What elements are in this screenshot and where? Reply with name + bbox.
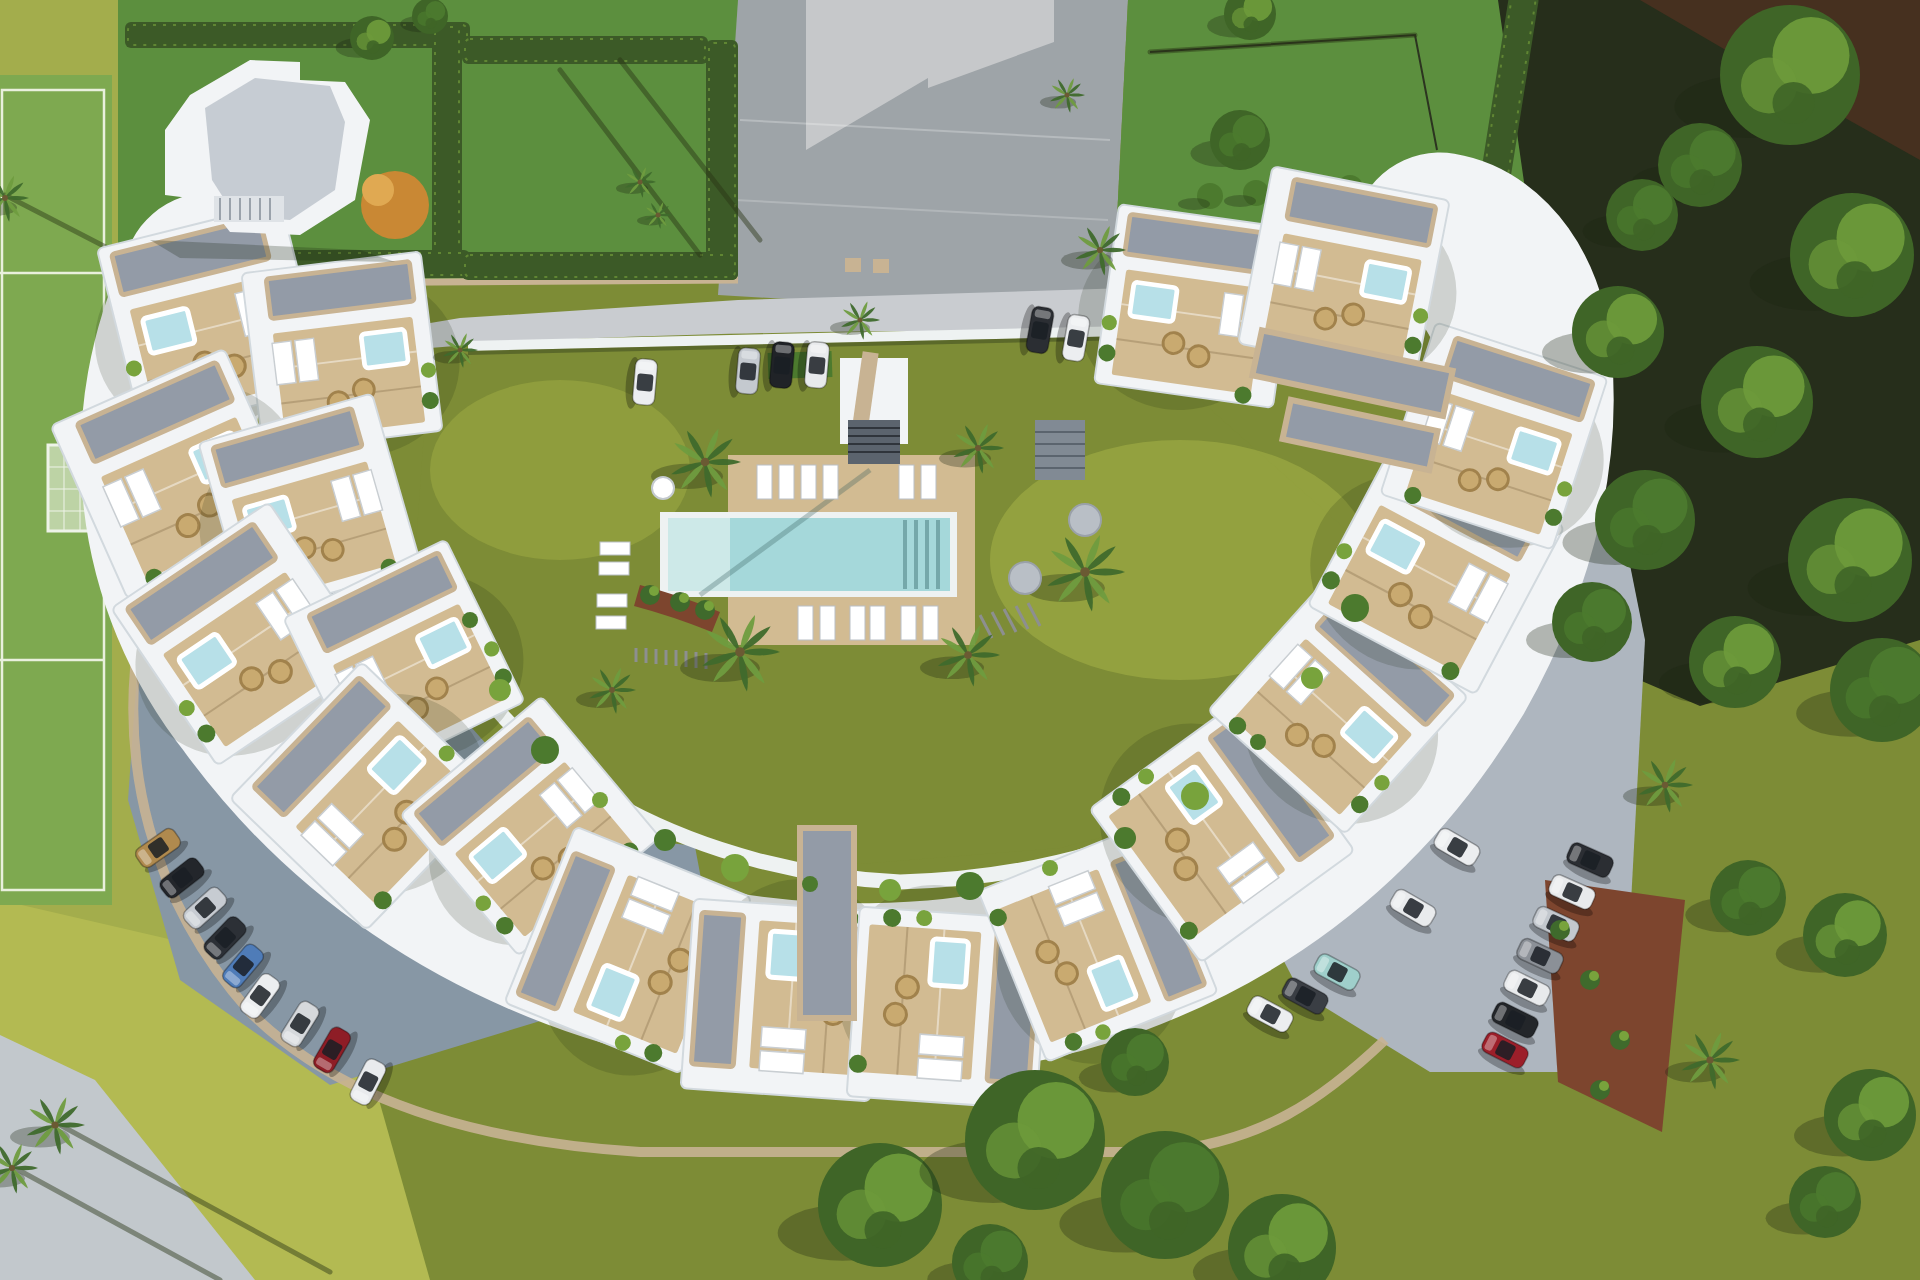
hedge — [462, 252, 738, 280]
sun-lounger — [295, 338, 319, 382]
walkway-plant — [1301, 667, 1323, 689]
hedge — [706, 40, 738, 280]
wicker-chair — [1187, 344, 1211, 368]
sun-lounger — [761, 1027, 806, 1050]
pool-lounger — [899, 465, 914, 499]
side-stairs — [1035, 420, 1085, 480]
gate-pillar-left — [845, 258, 861, 272]
walkway-plant — [1181, 782, 1209, 810]
walkway-plant — [654, 829, 676, 851]
sun-lounger — [759, 1051, 804, 1074]
car-hood-highlight — [810, 344, 827, 353]
pool-lounger — [820, 606, 835, 640]
pool-lounger — [798, 606, 813, 640]
entrance-pavilion — [840, 351, 908, 464]
walkway-plant — [592, 792, 608, 808]
pool-lounger — [850, 606, 865, 640]
lawn-sun-patch-2 — [430, 380, 690, 560]
pool-lounger — [870, 606, 885, 640]
pool-lounger — [596, 616, 626, 629]
jacuzzi — [1361, 261, 1410, 303]
car-glass — [808, 356, 825, 374]
bed-shrub-highlight — [649, 586, 659, 596]
walkway-plant — [721, 854, 749, 882]
pebble-strip-central — [800, 828, 854, 1018]
car-hood-highlight — [741, 350, 758, 359]
wicker-chair — [896, 975, 919, 998]
autumn-tree-highlight — [362, 174, 394, 206]
bed-shrub-highlight — [1589, 971, 1599, 981]
car-glass — [1067, 329, 1086, 349]
walkway-plant — [802, 876, 818, 892]
bed-shrub-highlight — [1599, 1081, 1609, 1091]
sun-lounger — [917, 1058, 962, 1081]
car-hood-highlight — [775, 344, 792, 353]
car-hood-highlight — [638, 361, 655, 370]
pool-lounger — [801, 465, 816, 499]
bed-shrub-highlight — [1619, 1031, 1629, 1041]
car-glass — [739, 362, 756, 380]
sun-lounger — [272, 341, 296, 385]
car-glass — [773, 356, 790, 374]
car-glass — [1031, 321, 1050, 341]
shrub-shadow — [1178, 198, 1210, 210]
hedge — [432, 24, 462, 276]
pool-lounger — [600, 542, 630, 555]
jacuzzi — [142, 308, 195, 354]
pool-lounger — [597, 594, 627, 607]
walkway-plant — [489, 679, 511, 701]
jacuzzi — [1129, 282, 1177, 322]
wicker-chair — [1162, 331, 1186, 355]
pool-lounger — [757, 465, 772, 499]
walkway-plant — [879, 879, 901, 901]
walkway-plant — [1341, 594, 1369, 622]
aerial-render — [0, 0, 1920, 1280]
scene-canvas — [0, 0, 1920, 1280]
pool-lounger — [923, 606, 938, 640]
walkway-plant — [956, 872, 984, 900]
bed-shrub-highlight — [704, 601, 714, 611]
jacuzzi — [930, 939, 969, 987]
shrub-shadow — [1224, 195, 1256, 207]
jacuzzi — [361, 329, 409, 368]
walkway-plant — [462, 612, 478, 628]
gate-pillar-right — [873, 259, 889, 273]
hedge — [462, 36, 708, 64]
round-platform — [1009, 562, 1041, 594]
walkway-plant — [1042, 860, 1058, 876]
pool-lounger — [599, 562, 629, 575]
walkway-plant — [1250, 734, 1266, 750]
bed-shrub-highlight — [1559, 921, 1569, 931]
round-platform — [1069, 504, 1101, 536]
pebble-roof — [691, 912, 744, 1067]
walkway-plant — [1114, 827, 1136, 849]
bed-shrub-highlight — [679, 593, 689, 603]
pool-lounger — [823, 465, 838, 499]
sun-lounger — [919, 1034, 964, 1057]
pool-lounger — [921, 465, 936, 499]
walkway-plant — [531, 736, 559, 764]
wicker-chair — [884, 1003, 907, 1026]
pool-lounger — [901, 606, 916, 640]
car-glass — [636, 373, 653, 391]
pool-lounger — [779, 465, 794, 499]
round-table — [652, 477, 674, 499]
